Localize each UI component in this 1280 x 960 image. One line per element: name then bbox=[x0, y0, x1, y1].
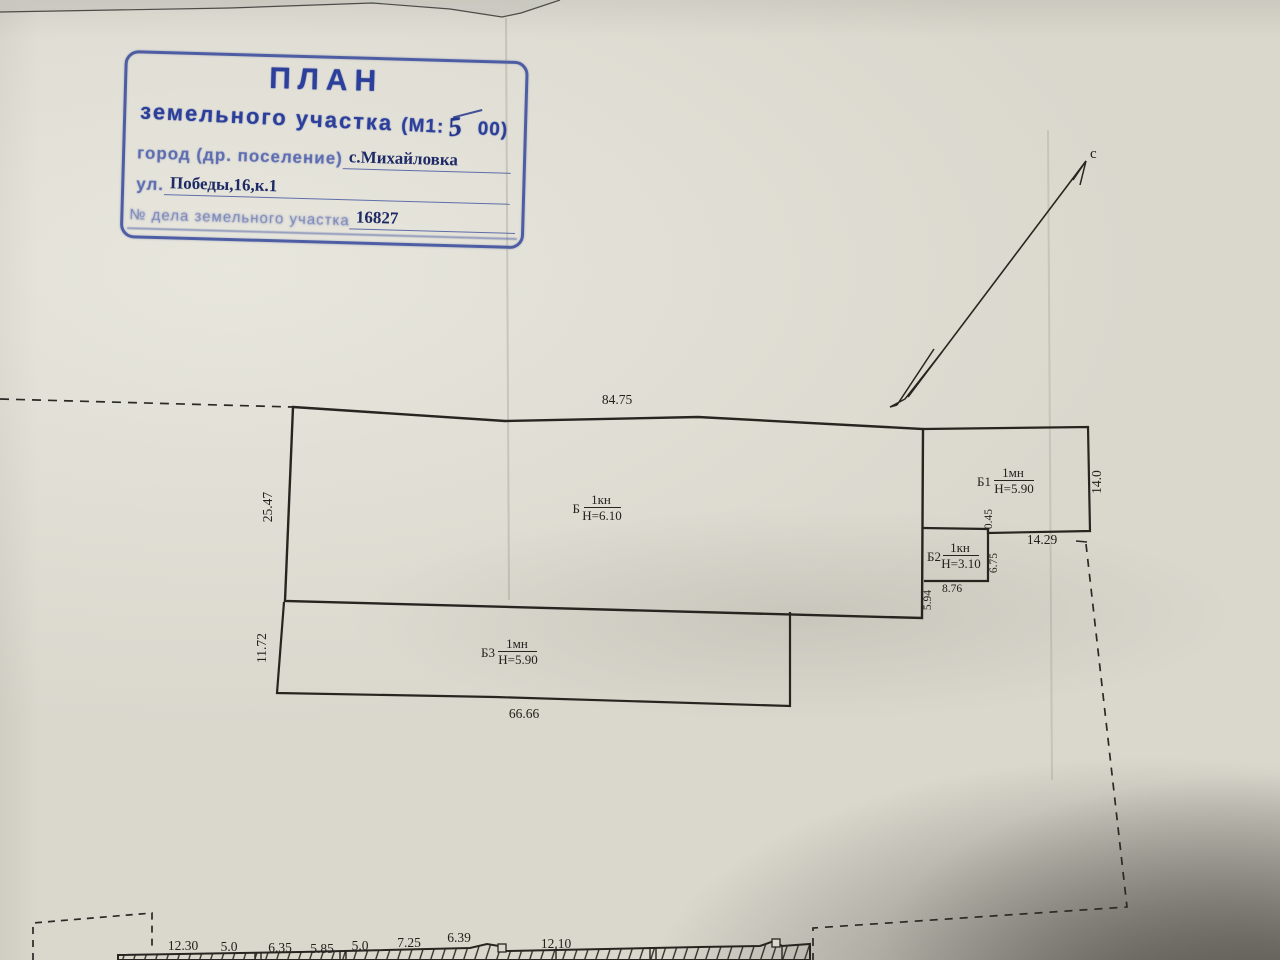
boundary-dashed-right-hook bbox=[1076, 541, 1087, 542]
north-arrow-head bbox=[1073, 161, 1086, 185]
dim-b2-bottom: 8.76 bbox=[942, 583, 962, 595]
label-building-b3: Б3 1мн Н=5.90 bbox=[481, 636, 538, 667]
street-strip-post-1 bbox=[498, 944, 506, 952]
street-dim-5: 5.0 bbox=[352, 938, 369, 953]
street-dim-6: 7.25 bbox=[397, 935, 421, 950]
street-dim-2: 5.0 bbox=[221, 939, 238, 954]
plan-drawing: с 84.75 25.4 bbox=[0, 0, 1280, 960]
label-b3-id: Б3 bbox=[481, 645, 495, 660]
dim-b1-bottom: 14.29 bbox=[1027, 532, 1058, 547]
label-b1-height: Н=5.90 bbox=[994, 481, 1033, 496]
dim-b3-bottom: 66.66 bbox=[509, 706, 540, 721]
label-b1-type: 1мн bbox=[1002, 465, 1024, 480]
street-dim-3: 6.35 bbox=[268, 940, 292, 955]
boundary-dashed-bottom-left bbox=[33, 913, 152, 960]
boundary-dashed-right bbox=[813, 544, 1127, 960]
north-arrow: с bbox=[890, 146, 1097, 407]
label-b2-id: Б2 bbox=[927, 549, 941, 564]
street-dim-8: 12.10 bbox=[541, 936, 572, 951]
fold-crease-left bbox=[506, 18, 509, 600]
label-b1-id: Б1 bbox=[977, 474, 991, 489]
scanned-land-plan-page: ПЛАН земельного участка (М1:500) город (… bbox=[0, 0, 1280, 960]
label-b2-type: 1кн bbox=[950, 540, 970, 555]
dim-b-top: 84.75 bbox=[602, 392, 633, 407]
label-b2-height: Н=3.10 bbox=[941, 556, 980, 571]
street-dim-1: 12.30 bbox=[168, 938, 199, 953]
boundary-dashed-left bbox=[0, 399, 293, 407]
north-label: с bbox=[1090, 146, 1097, 162]
label-b3-type: 1мн bbox=[506, 636, 528, 651]
label-building-b2: Б2 1кн Н=3.10 bbox=[927, 540, 981, 571]
page-edge-shadow bbox=[0, 0, 560, 17]
dim-b1-right: 14.0 bbox=[1089, 470, 1104, 494]
label-b-type: 1кн bbox=[591, 492, 611, 507]
label-building-b: Б 1кн Н=6.10 bbox=[573, 492, 622, 523]
label-b-id: Б bbox=[573, 501, 580, 516]
dim-b-left: 25.47 bbox=[260, 492, 275, 523]
street-dim-7: 6.39 bbox=[447, 930, 471, 945]
fold-crease-right bbox=[1048, 130, 1052, 780]
dim-b2-right: 6.75 bbox=[988, 553, 1000, 573]
dim-b3-left: 11.72 bbox=[254, 633, 269, 663]
north-arrow-fletching bbox=[890, 349, 942, 407]
label-building-b1: Б1 1мн Н=5.90 bbox=[977, 465, 1034, 496]
street-strip-post-2 bbox=[772, 939, 780, 947]
label-b-height: Н=6.10 bbox=[582, 508, 621, 523]
street-dim-4: 5.85 bbox=[310, 941, 334, 956]
dim-b2-left: 5.94 bbox=[922, 590, 934, 610]
label-b3-height: Н=5.90 bbox=[498, 652, 537, 667]
dim-b1-jog: 0.45 bbox=[983, 509, 995, 529]
